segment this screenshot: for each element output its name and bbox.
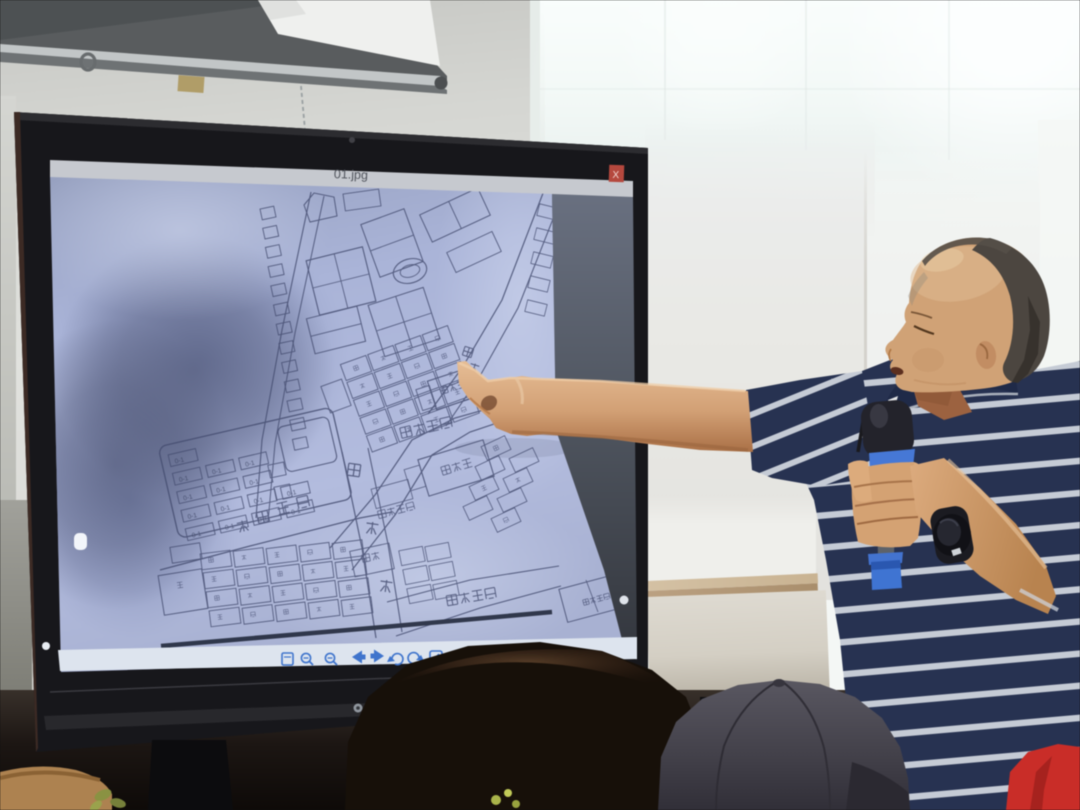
svg-text:X: X: [612, 170, 619, 181]
svg-text:01.jpg: 01.jpg: [334, 167, 369, 182]
